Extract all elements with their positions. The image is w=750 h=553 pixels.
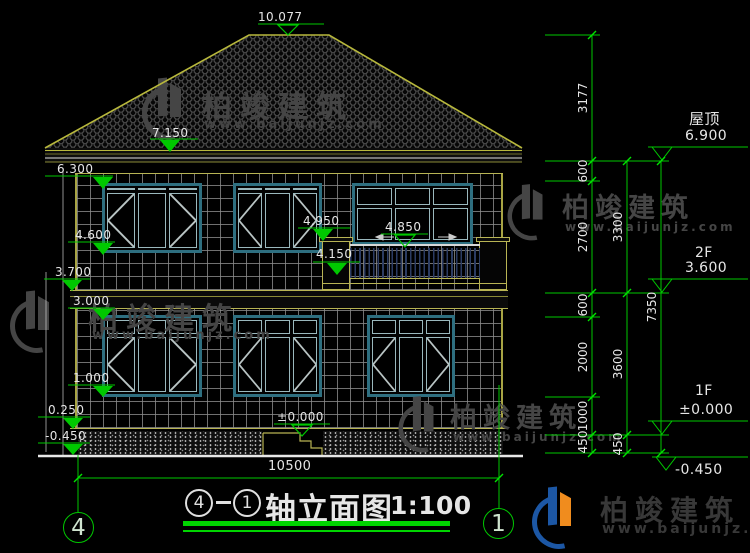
dim-value: 600 [576,294,590,317]
title-underline-thick [183,521,450,526]
axis-bubble-4: 4 [63,512,94,543]
level-value: 4.600 [75,228,111,242]
footer-url: www.baijunjz.com [602,521,750,537]
level-marker-triangles [62,25,415,455]
dim-value: 7350 [645,292,659,323]
title-axis-end-bubble: 1 [233,489,261,517]
axis-number: 1 [491,511,506,537]
storey-level: 3.600 [685,260,727,276]
level-value: 1.000 [73,371,109,385]
level-value: 4.950 [303,214,339,228]
overall-width-dim: 10500 [268,459,311,474]
dim-value: 1000 [576,401,590,432]
slide-arrow-icons [376,234,456,240]
dim-value: 450 [611,433,625,456]
dim-value: 600 [576,160,590,183]
level-value: 10.077 [258,10,302,24]
storey-label: 2F [695,245,713,261]
dim-value: 3177 [576,83,590,114]
level-value: 4.850 [385,220,421,234]
storey-level: ±0.000 [679,402,733,418]
dim-value: 2000 [576,342,590,373]
storey-label: 1F [695,383,713,399]
level-value: 3.700 [55,265,91,279]
storey-level-markers [648,147,748,470]
drawing-scale: 1:100 [390,491,472,520]
level-value: 0.250 [48,403,84,417]
axis-number: 4 [71,515,86,541]
cad-elevation-canvas: 柏竣建筑 www.baijunjz.com 柏竣建筑 www.baijunjz.… [0,0,750,553]
axis-bubble-1: 1 [483,508,514,539]
title-axis-start-bubble: 4 [185,489,213,517]
linework-overlay [0,0,750,553]
level-value: 4.150 [316,247,352,261]
level-value: -0.450 [45,429,86,443]
level-value: 6.300 [57,162,93,176]
level-value: 3.000 [73,294,109,308]
roof-outline [45,35,522,162]
storey-label: 屋顶 [689,108,720,129]
level-value: ±0.000 [277,410,324,424]
dim-value: 450 [576,431,590,454]
dim-value: 3600 [611,349,625,380]
title-dash [216,501,231,504]
title-underline-thin [183,530,450,532]
storey-level: -0.450 [675,462,723,478]
dim-value: 2700 [576,222,590,253]
storey-level: 6.900 [685,128,727,144]
axis-number: 4 [194,493,205,513]
dim-value: 3300 [611,212,625,243]
footer-brand-logo-icon [532,487,588,543]
axis-number: 1 [242,493,253,513]
level-value: 7.150 [152,126,188,140]
